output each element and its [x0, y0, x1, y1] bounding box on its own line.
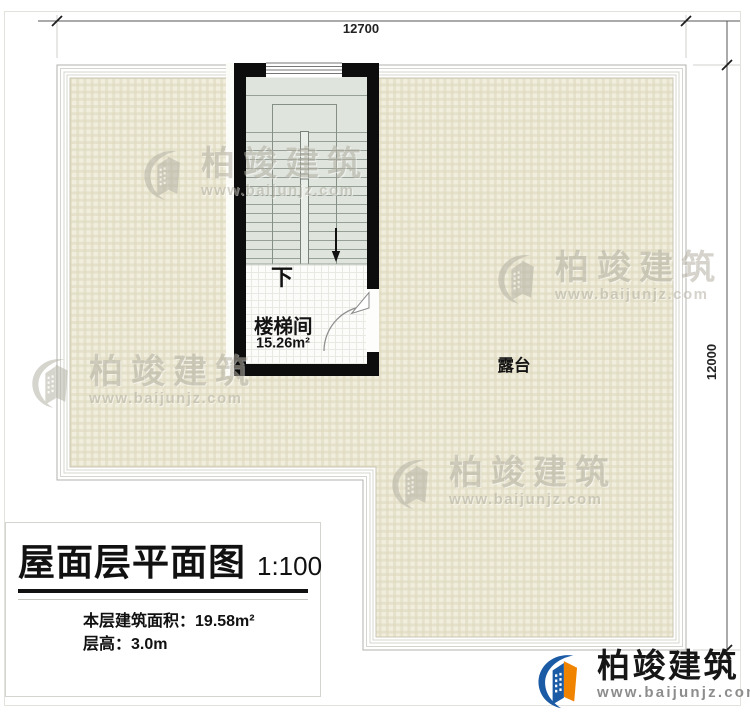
stair-direction-label: 下 — [271, 265, 293, 290]
stair-rail — [301, 132, 309, 265]
width-dimension-label: 12700 — [343, 21, 379, 36]
title-underline — [18, 589, 308, 593]
brand-url: www.baijunjz.com — [597, 685, 750, 702]
brand-name: 柏竣建筑 — [597, 648, 750, 684]
title-underline-thin — [18, 599, 308, 600]
window — [266, 61, 342, 78]
title-block: 屋面层平面图 1:100 本层建筑面积：19.58m² 层高：3.0m — [5, 522, 321, 697]
floor-height-value: 3.0m — [131, 636, 167, 653]
plan-scale: 1:100 — [257, 551, 322, 582]
stairwell: 下 楼梯间 15.26m² — [234, 61, 379, 376]
plan-title: 屋面层平面图 — [18, 532, 246, 586]
brand-logo: 柏竣建筑 www.baijunjz.com — [533, 648, 750, 710]
floor-area-label: 本层建筑面积： — [83, 613, 195, 630]
stairwell-area-label: 15.26m² — [256, 336, 310, 352]
wall-gap-strip — [226, 63, 234, 376]
brand-logo-icon — [533, 648, 591, 710]
floor-area-value: 19.58m² — [195, 613, 255, 630]
floor-area-line: 本层建筑面积：19.58m² — [83, 610, 320, 633]
height-dimension-label: 12000 — [704, 344, 719, 380]
terrace-label: 露台 — [498, 355, 531, 375]
floor-height-label: 层高： — [83, 636, 131, 653]
floor-height-line: 层高：3.0m — [83, 633, 320, 656]
